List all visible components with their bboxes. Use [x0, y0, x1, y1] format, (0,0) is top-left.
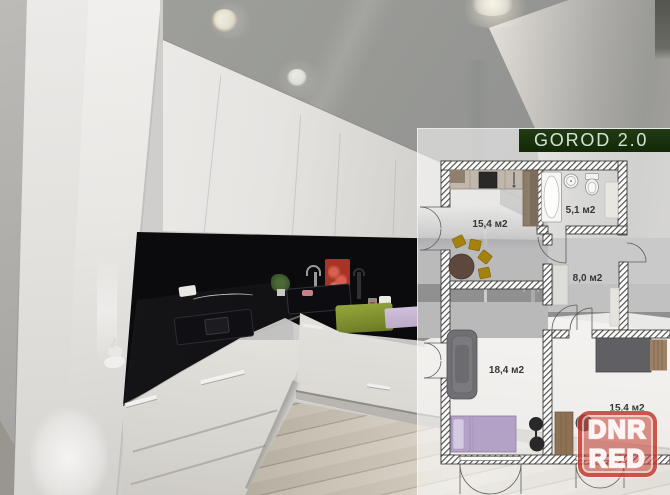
svg-text:5,1 м2: 5,1 м2 — [566, 205, 596, 216]
svg-text:8,0 м2: 8,0 м2 — [573, 273, 603, 284]
svg-text:18,4 м2: 18,4 м2 — [489, 365, 525, 376]
svg-text:15,4 м2: 15,4 м2 — [472, 219, 508, 230]
